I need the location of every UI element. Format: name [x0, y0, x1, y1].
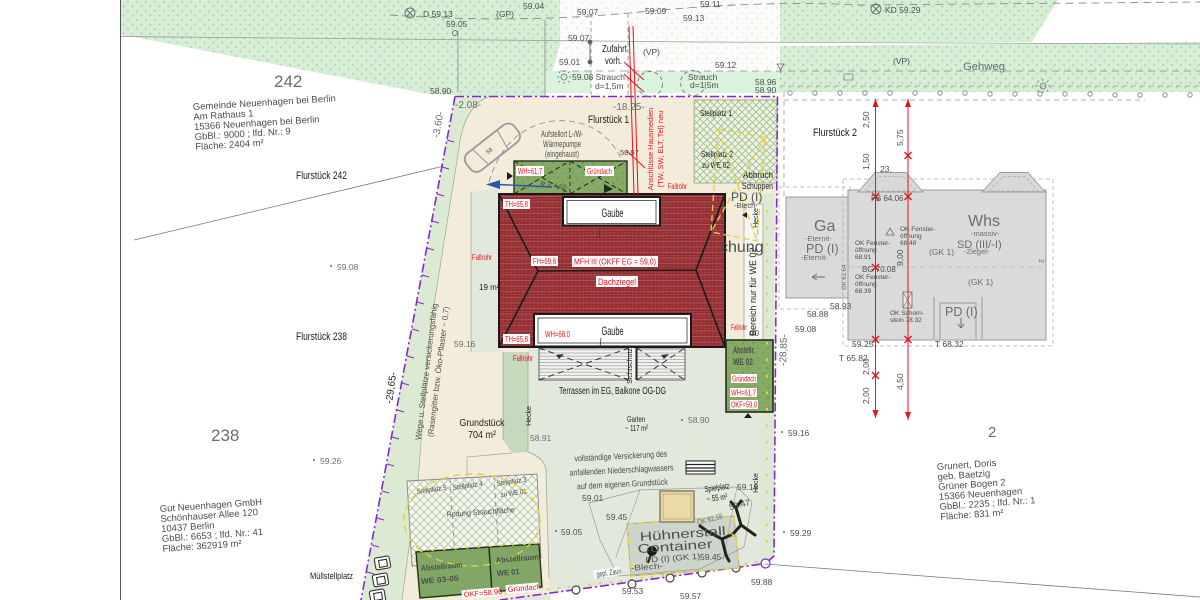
svg-text:(VP): (VP) [893, 56, 910, 66]
svg-text:-Ziegel-: -Ziegel- [964, 247, 990, 256]
svg-text:Stellplatz 1: Stellplatz 1 [700, 108, 732, 118]
svg-text:Bereich nur für WE 02: Bereich nur für WE 02 [748, 247, 758, 336]
svg-text:58.88: 58.88 [807, 309, 829, 319]
svg-text:stein 78.32: stein 78.32 [890, 317, 922, 324]
svg-text:Flurstück 238: Flurstück 238 [296, 331, 347, 343]
svg-text:d=1,5m: d=1,5m [595, 81, 624, 91]
svg-text:2,00: 2,00 [861, 358, 871, 375]
svg-text:Dachziegel: Dachziegel [598, 277, 636, 287]
svg-text:Abstellr.: Abstellr. [733, 345, 755, 355]
svg-text:Gehweg: Gehweg [963, 61, 1005, 73]
svg-text:vorh.: vorh. [605, 56, 622, 67]
svg-text:OKF=59,0: OKF=59,0 [731, 400, 757, 410]
svg-text:KD 59.29: KD 59.29 [885, 5, 921, 15]
svg-text:Fallrohr: Fallrohr [513, 353, 533, 363]
svg-text:~ 117 m²: ~ 117 m² [625, 423, 648, 433]
svg-text:(VP): (VP) [643, 47, 660, 57]
svg-text:-18.25-: -18.25- [613, 102, 645, 113]
svg-text:OK Fenster-: OK Fenster- [855, 240, 890, 247]
svg-text:Flurstück 1: Flurstück 1 [588, 114, 629, 126]
svg-text:Müllstellplatz: Müllstellplatz [310, 571, 353, 581]
svg-text:TH=65,8: TH=65,8 [505, 334, 528, 344]
svg-text:Ga: Ga [814, 218, 835, 235]
svg-text:59.07: 59.07 [568, 33, 590, 43]
svg-text:58.93: 58.93 [830, 301, 852, 311]
svg-text:58.91: 58.91 [530, 433, 552, 443]
svg-text:Flurstück 2: Flurstück 2 [813, 127, 857, 139]
svg-text:OK Fenster-: OK Fenster- [855, 274, 890, 281]
svg-text:FB 64.06: FB 64.06 [871, 194, 904, 203]
svg-text:59.88: 59.88 [751, 577, 773, 587]
svg-text:59.16: 59.16 [454, 339, 476, 349]
svg-text:59.01: 59.01 [559, 57, 581, 67]
svg-text:öffnung: öffnung [855, 281, 877, 288]
svg-text:58.90: 58.90 [430, 86, 452, 96]
svg-text:öffnung: öffnung [900, 233, 922, 240]
svg-text:Fallrohr: Fallrohr [472, 252, 492, 262]
svg-text:704 m²: 704 m² [468, 429, 496, 441]
svg-text:OK 61.64: OK 61.64 [842, 264, 848, 290]
svg-text:242: 242 [274, 72, 302, 91]
svg-text:Gründach: Gründach [587, 166, 612, 176]
svg-text:238: 238 [211, 426, 239, 445]
svg-text:59.08: 59.08 [795, 324, 817, 334]
svg-text:59.16: 59.16 [788, 428, 810, 438]
svg-text:59.29: 59.29 [790, 528, 812, 538]
svg-text:-28,85-: -28,85- [778, 334, 790, 366]
svg-text:Flurstück 242: Flurstück 242 [296, 170, 347, 182]
svg-text:Zufahrt: Zufahrt [602, 44, 627, 55]
svg-text:59.07: 59.07 [577, 7, 599, 17]
svg-text:59.01: 59.01 [582, 493, 604, 503]
svg-text:Sichtschutz: Sichtschutz [627, 348, 634, 384]
svg-text:Gaube: Gaube [602, 324, 624, 338]
svg-text:BG 70.08: BG 70.08 [862, 265, 896, 274]
svg-text:TH=65,8: TH=65,8 [505, 199, 528, 209]
svg-text:d=1,5m: d=1,5m [690, 80, 719, 90]
svg-text:58.90: 58.90 [688, 415, 710, 425]
svg-text:-massiv-: -massiv- [971, 229, 1000, 238]
svg-text:2: 2 [988, 424, 996, 441]
svg-text:MFH III (OKFF EG = 59,0): MFH III (OKFF EG = 59,0) [574, 258, 656, 267]
svg-text:2,50: 2,50 [861, 111, 871, 128]
svg-text:59.25: 59.25 [852, 339, 874, 349]
svg-text:OK Schorn-: OK Schorn- [890, 310, 924, 317]
svg-text:59.45: 59.45 [700, 552, 722, 562]
svg-text:(GP): (GP) [496, 9, 514, 19]
svg-text:Hecke: Hecke [753, 208, 760, 228]
svg-text:Aufstellort L-/W-: Aufstellort L-/W- [541, 129, 583, 139]
svg-text:59.16: 59.16 [737, 482, 759, 492]
svg-text:9,00: 9,00 [895, 249, 905, 266]
svg-text:(TW, SW, ELT, Tel) neu: (TW, SW, ELT, Tel) neu [656, 111, 665, 188]
svg-text:58.97: 58.97 [620, 148, 639, 157]
svg-text:Whs: Whs [968, 213, 1000, 230]
svg-text:(GK 1): (GK 1) [968, 277, 993, 287]
svg-text:59.26: 59.26 [320, 456, 342, 466]
svg-text:59.53: 59.53 [622, 586, 644, 596]
svg-text:OK Fenster-: OK Fenster- [900, 226, 935, 233]
svg-text:59.09: 59.09 [645, 6, 667, 16]
svg-text:Anschlüsse Hausmedien: Anschlüsse Hausmedien [646, 108, 655, 191]
svg-text:5,75: 5,75 [895, 129, 905, 146]
svg-text:23.: 23. [880, 164, 892, 174]
svg-text:58.90: 58.90 [755, 85, 777, 95]
svg-text:(GK 1): (GK 1) [929, 247, 954, 257]
svg-text:68.91: 68.91 [855, 254, 872, 261]
svg-text:D 59.13: D 59.13 [423, 9, 453, 19]
svg-text:-2.08-: -2.08- [455, 100, 481, 111]
svg-text:zu WE 02: zu WE 02 [702, 160, 730, 170]
svg-text:59.13: 59.13 [683, 13, 705, 23]
svg-text:Terrassen im EG, Balkone OG-DG: Terrassen im EG, Balkone OG-DG [559, 386, 666, 397]
svg-text:öffnung: öffnung [855, 247, 877, 254]
svg-text:59.45: 59.45 [606, 512, 628, 522]
svg-text:T 68.32: T 68.32 [935, 339, 964, 349]
svg-text:Gründach: Gründach [732, 374, 756, 384]
svg-text:59.57: 59.57 [680, 591, 702, 600]
svg-text:Wärmepumpe: Wärmepumpe [543, 139, 581, 149]
svg-text:2: 2 [1037, 259, 1044, 263]
svg-text:PD (I): PD (I) [945, 305, 978, 319]
svg-text:59.11: 59.11 [700, 0, 721, 9]
svg-text:59.12: 59.12 [715, 60, 737, 70]
svg-text:Hecke: Hecke [526, 406, 533, 426]
svg-text:59.04: 59.04 [523, 1, 545, 11]
svg-text:2,00: 2,00 [861, 387, 871, 404]
svg-text:4,50: 4,50 [895, 373, 905, 390]
svg-text:(eingehaust): (eingehaust) [545, 149, 579, 159]
svg-text:Abbruch: Abbruch [743, 170, 773, 180]
svg-text:Fallrohr: Fallrohr [668, 181, 687, 191]
svg-text:WH=61,7: WH=61,7 [518, 166, 542, 176]
svg-text:Grundstück: Grundstück [460, 417, 506, 429]
svg-text:68.48: 68.48 [900, 240, 917, 247]
svg-text:Fallrohr: Fallrohr [731, 322, 747, 332]
svg-text:59.08: 59.08 [337, 262, 359, 272]
svg-text:68.39: 68.39 [855, 288, 872, 295]
svg-text:1,50: 1,50 [861, 153, 871, 170]
svg-text:WH=61,7: WH=61,7 [731, 388, 756, 398]
svg-text:Gaube: Gaube [602, 206, 624, 220]
svg-text:WE 02: WE 02 [733, 357, 753, 367]
svg-text:-Eternit-: -Eternit- [801, 253, 828, 262]
svg-text:FH=69,6: FH=69,6 [533, 256, 556, 266]
svg-text:59.05: 59.05 [446, 19, 468, 29]
svg-text:WH=68,0: WH=68,0 [545, 329, 570, 339]
svg-text:59.05: 59.05 [561, 527, 583, 537]
svg-text:19 m²: 19 m² [479, 283, 500, 292]
